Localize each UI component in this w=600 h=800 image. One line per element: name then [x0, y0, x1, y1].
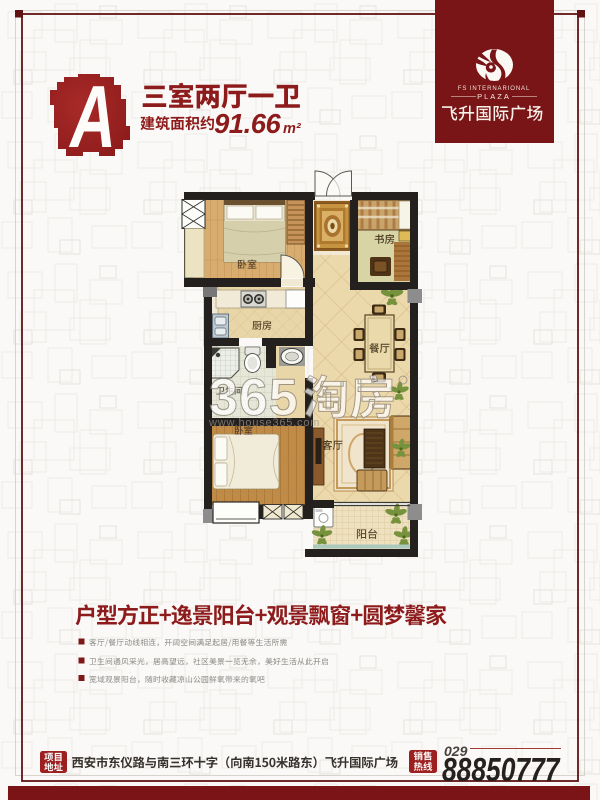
svg-text:88850777: 88850777	[442, 752, 561, 788]
svg-text:A: A	[68, 69, 115, 167]
svg-text:m²: m²	[283, 121, 302, 137]
svg-text:www.house365.com: www.house365.com	[208, 417, 320, 429]
svg-text:PLAZA: PLAZA	[477, 92, 511, 101]
svg-text:91.66: 91.66	[214, 108, 282, 139]
